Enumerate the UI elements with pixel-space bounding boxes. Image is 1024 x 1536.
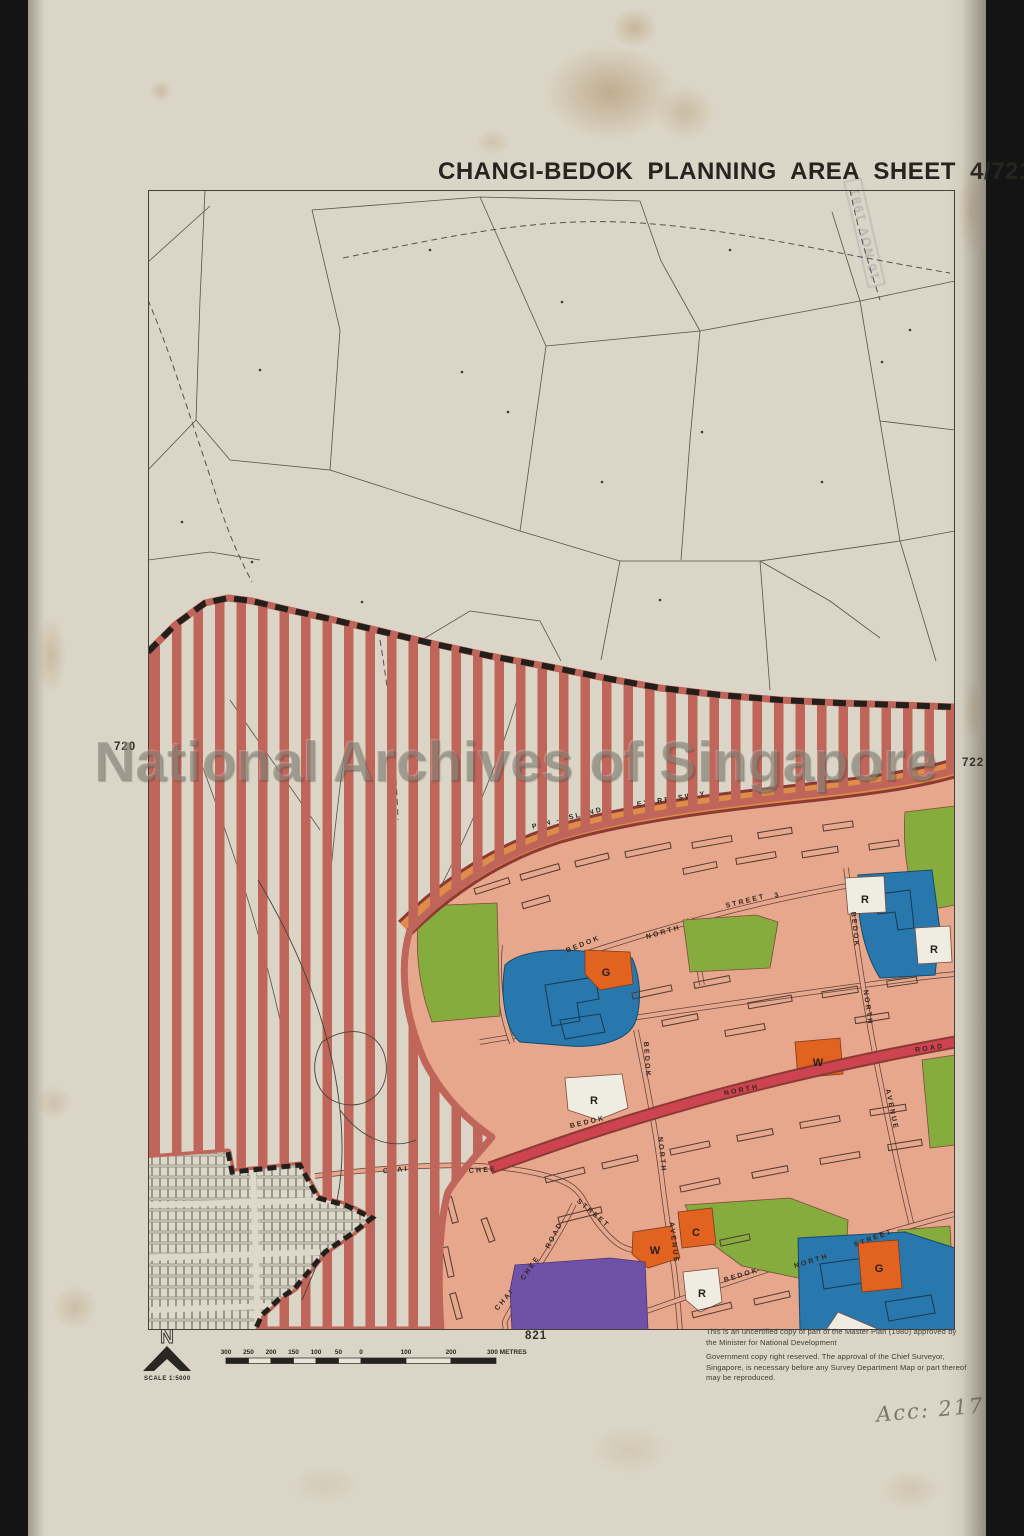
scale-bar-segment (316, 1358, 339, 1364)
scale-bar-label: 300 METRES (487, 1349, 527, 1356)
scale-bar-segment (451, 1358, 496, 1364)
scale-bar-label: 150 (288, 1349, 299, 1356)
scale-bar-label: 200 (266, 1349, 277, 1356)
scale-bar-label: 100 (401, 1349, 412, 1356)
scale-label: SCALE 1:5000 (144, 1376, 191, 1382)
paper-edge-shadow (962, 0, 986, 1536)
north-arrow-glyph (143, 1346, 191, 1371)
scale-bar-segment (226, 1358, 249, 1364)
scanned-map-sheet: CHANGI-BEDOK PLANNING AREA SHEET 4/721 1… (0, 0, 1024, 1536)
scale-bar-label: 300 (221, 1349, 232, 1356)
north-arrow: N SCALE 1:5000 (143, 1327, 191, 1382)
scale-bar-segment (406, 1358, 451, 1364)
scale-bar-label: 250 (243, 1349, 254, 1356)
north-letter: N (160, 1327, 174, 1348)
paper-edge-shadow (28, 0, 44, 1536)
scale-bar-label: 200 (446, 1349, 457, 1356)
scale-bar-label: 50 (335, 1349, 343, 1356)
scale-bar-segment (339, 1358, 362, 1364)
scale-bar-segment (271, 1358, 294, 1364)
scale-bar-segment (294, 1358, 317, 1364)
scale-bar: 300250200150100500100200300 METRES (221, 1349, 528, 1364)
note-uncertified: This is an uncertified copy of part of t… (706, 1327, 968, 1348)
scale-bar-segment (361, 1358, 406, 1364)
note-copyright: Government copy right reserved. The appr… (706, 1352, 968, 1384)
scale-bar-label: 0 (359, 1349, 363, 1356)
scale-bar-label: 100 (311, 1349, 322, 1356)
scale-bar-segment (249, 1358, 272, 1364)
margin-annotations: N SCALE 1:5000 3002502001501005001002003… (0, 0, 1024, 1536)
